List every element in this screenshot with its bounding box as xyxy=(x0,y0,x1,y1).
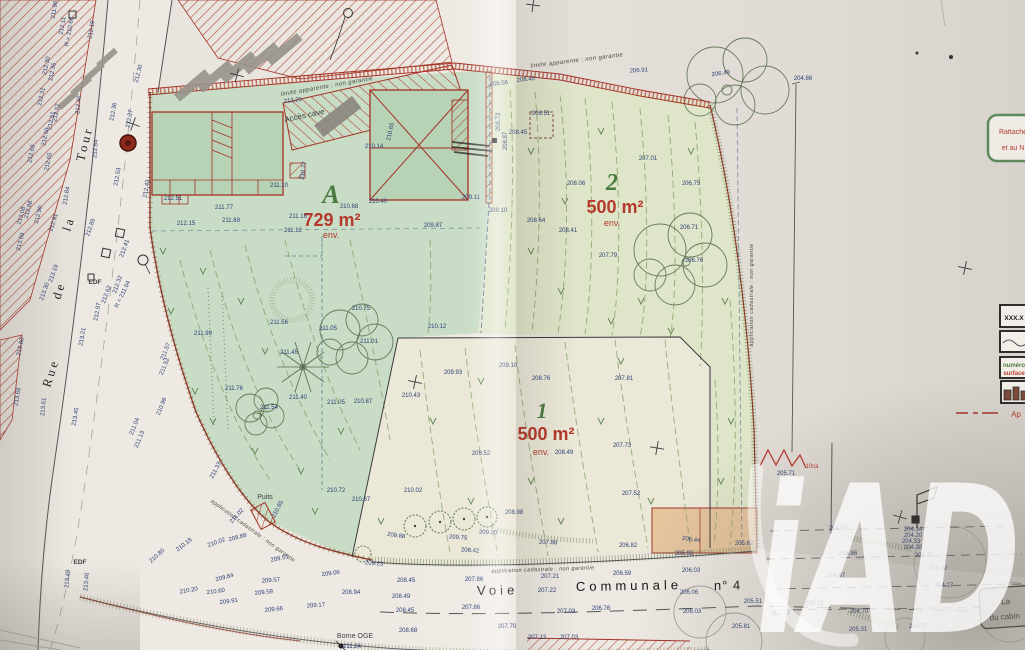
parcel-2-id: 2 xyxy=(605,170,618,196)
elevation-label: 206.76 xyxy=(685,258,704,264)
side-note-box xyxy=(988,115,1025,161)
elevation-label: 210.87 xyxy=(354,399,373,405)
puits-label: Puits xyxy=(257,494,273,501)
elevation-label: 207.79 xyxy=(599,253,618,259)
elevation-label: 209.87 xyxy=(424,223,443,229)
iad-watermark: iAD xyxy=(756,443,1021,650)
scanned-site-plan: Rattaché et au N XXX.X numéro surface Ap… xyxy=(0,0,1025,650)
building-main xyxy=(152,112,283,195)
elevation-label: 211.40 xyxy=(289,395,308,401)
parcel-a-id: A xyxy=(320,180,339,209)
elevation-label: 211.99 xyxy=(194,331,213,337)
elevation-label: 207.01 xyxy=(639,156,658,162)
watermark-layer: iAD xyxy=(754,443,1021,650)
elevation-label: 206.71 xyxy=(680,225,699,231)
elevation-label: 209.93 xyxy=(444,370,463,376)
elevation-label: 211.54 xyxy=(260,405,279,411)
elevation-label: 212.51 xyxy=(164,196,183,202)
elevation-label: 210.02 xyxy=(404,488,423,494)
cadastral-annotation-right: application cadastrale : non garantie xyxy=(749,243,755,346)
side-note-line2: et au N xyxy=(1002,145,1025,152)
elevation-label: 211.05 xyxy=(319,326,338,332)
parcel-2-area: 500 m² xyxy=(586,197,643,217)
elevation-label: 211.69 xyxy=(222,218,241,224)
side-note-line1: Rattaché xyxy=(999,129,1025,136)
elevation-label: 211.10 xyxy=(270,183,289,189)
edf-upper-label: EDF xyxy=(89,279,102,286)
elevation-label: 210.87 xyxy=(352,497,371,503)
legend-alt-sample: XXX.X xyxy=(1004,315,1024,322)
elevation-label: 211.56 xyxy=(270,320,289,326)
parcel-a-area: 729 m² xyxy=(303,210,360,230)
elevation-label: 211.05 xyxy=(327,400,346,406)
site-plan-svg: Rattaché et au N XXX.X numéro surface Ap… xyxy=(0,0,1025,650)
borne-alt-label: 211.24 xyxy=(343,644,362,650)
elevation-label: 210.43 xyxy=(402,393,421,399)
elevation-label: 211.76 xyxy=(225,386,244,392)
elevation-label: 206.75 xyxy=(682,181,701,187)
borne-oge-label: Borne OGE xyxy=(337,633,374,640)
elevation-label: 210.40 xyxy=(369,199,388,205)
elevation-label: 210.72 xyxy=(327,488,346,494)
elevation-label: 211.01 xyxy=(360,339,379,345)
elevation-label: 211.77 xyxy=(215,205,234,211)
elevation-label: 208.68 xyxy=(399,628,418,634)
parcel-a-approx: env. xyxy=(323,230,339,240)
elevation-label: 204.86 xyxy=(794,76,813,82)
elevation-label: 210.75 xyxy=(352,306,371,312)
elevation-label: 208.45 xyxy=(397,578,416,584)
elevation-label: 210.12 xyxy=(428,324,447,330)
elevation-label: 208.49 xyxy=(392,594,411,600)
elevation-label: 211.12 xyxy=(284,228,303,234)
elevation-label: 210.14 xyxy=(365,144,384,150)
elevation-label: 208.45 xyxy=(396,608,415,614)
elevation-label: 212.15 xyxy=(177,221,196,227)
elevation-label: 211.16 xyxy=(289,214,308,220)
elevation-label: 210.68 xyxy=(340,204,359,210)
elevation-label: 211.45 xyxy=(280,350,299,356)
parcel-2-approx: env. xyxy=(604,218,620,228)
elevation-label: 208.94 xyxy=(342,590,361,596)
